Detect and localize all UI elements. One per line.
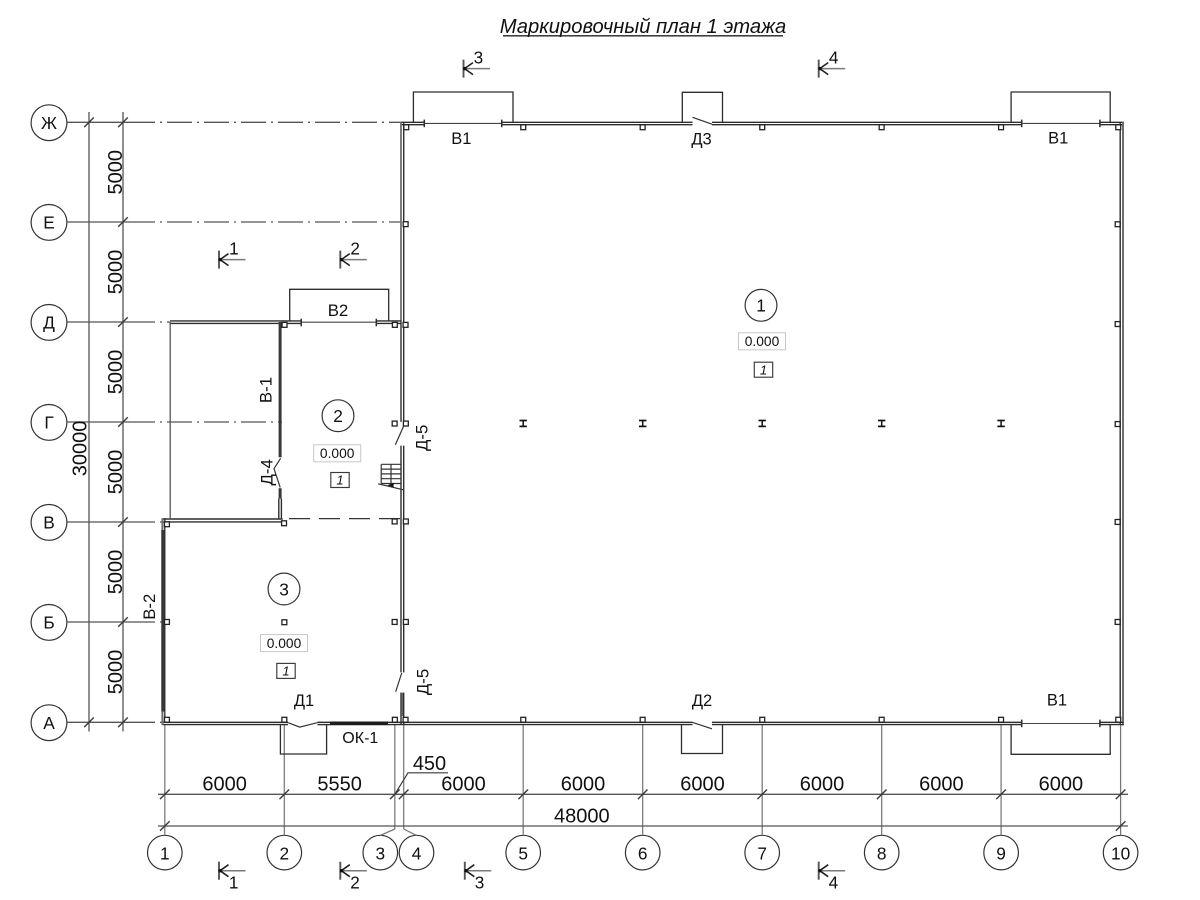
svg-text:7: 7 [757, 843, 767, 863]
svg-text:В: В [43, 513, 55, 533]
svg-text:1: 1 [336, 473, 343, 488]
svg-text:6000: 6000 [919, 774, 964, 796]
svg-text:Ж: Ж [41, 113, 57, 133]
svg-text:1: 1 [160, 843, 170, 863]
svg-text:10: 10 [1111, 843, 1130, 863]
svg-text:Д-4: Д-4 [258, 459, 277, 485]
svg-text:В-1: В-1 [256, 377, 275, 403]
svg-text:Д-5: Д-5 [413, 425, 432, 451]
svg-text:Маркировочный план 1 этажа: Маркировочный план 1 этажа [500, 16, 787, 38]
svg-text:9: 9 [996, 843, 1006, 863]
svg-text:А: А [43, 713, 55, 733]
svg-text:В1: В1 [1047, 691, 1067, 709]
svg-text:3: 3 [474, 47, 484, 67]
svg-text:Е: Е [43, 213, 55, 233]
svg-text:В1: В1 [451, 130, 471, 148]
svg-text:5000: 5000 [105, 650, 127, 695]
svg-text:1: 1 [282, 664, 289, 679]
svg-text:Д: Д [43, 313, 55, 333]
svg-text:5550: 5550 [317, 774, 362, 796]
svg-text:0.000: 0.000 [320, 446, 355, 461]
svg-text:5000: 5000 [105, 550, 127, 595]
svg-text:6: 6 [638, 843, 648, 863]
svg-text:Д2: Д2 [692, 692, 712, 710]
svg-text:4: 4 [412, 843, 422, 863]
svg-text:5000: 5000 [105, 450, 127, 495]
svg-text:5000: 5000 [105, 250, 127, 295]
svg-text:6000: 6000 [800, 774, 845, 796]
svg-text:В-2: В-2 [140, 594, 159, 620]
svg-text:2: 2 [350, 872, 360, 892]
svg-text:0.000: 0.000 [745, 334, 780, 349]
svg-text:1: 1 [760, 362, 767, 377]
svg-text:6000: 6000 [680, 774, 725, 796]
svg-text:3: 3 [279, 579, 289, 599]
svg-text:1: 1 [229, 238, 239, 258]
svg-text:5: 5 [518, 843, 528, 863]
svg-text:0.000: 0.000 [267, 636, 302, 651]
svg-text:6000: 6000 [441, 774, 486, 796]
svg-text:450: 450 [413, 753, 446, 775]
svg-text:В1: В1 [1048, 130, 1068, 148]
svg-text:6000: 6000 [561, 774, 606, 796]
svg-text:2: 2 [350, 238, 360, 258]
svg-text:3: 3 [375, 843, 385, 863]
svg-text:ОК-1: ОК-1 [342, 730, 378, 747]
svg-text:4: 4 [829, 872, 839, 892]
svg-text:2: 2 [279, 843, 289, 863]
svg-text:1: 1 [756, 296, 766, 316]
svg-text:5000: 5000 [105, 150, 127, 195]
svg-text:Г: Г [44, 413, 54, 433]
svg-text:1: 1 [229, 872, 239, 892]
svg-text:Б: Б [43, 613, 54, 633]
svg-text:48000: 48000 [554, 806, 610, 828]
svg-text:2: 2 [333, 406, 343, 426]
svg-text:6000: 6000 [1039, 774, 1084, 796]
svg-text:В2: В2 [328, 301, 349, 320]
svg-text:Д1: Д1 [294, 692, 314, 710]
svg-text:4: 4 [829, 47, 839, 67]
svg-text:Д3: Д3 [691, 131, 711, 149]
svg-text:Д-5: Д-5 [414, 669, 433, 695]
svg-text:8: 8 [877, 843, 887, 863]
svg-text:6000: 6000 [202, 774, 247, 796]
svg-text:5000: 5000 [105, 350, 127, 395]
svg-text:3: 3 [475, 872, 485, 892]
svg-text:30000: 30000 [70, 421, 92, 477]
